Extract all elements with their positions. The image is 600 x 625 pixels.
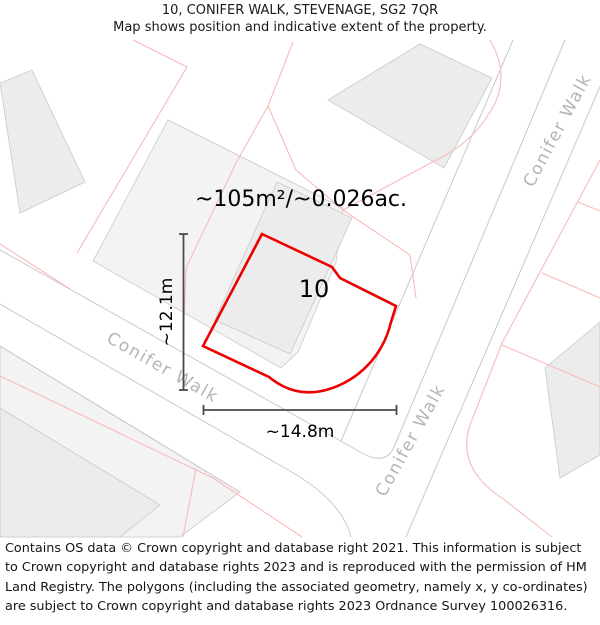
parcel-line-nw-lower (0, 244, 70, 289)
building-east (545, 322, 600, 478)
road-label-conifer-walk-northeast: Conifer Walk (520, 70, 596, 190)
map-header: 10, CONIFER WALK, STEVENAGE, SG2 7QR Map… (0, 3, 600, 36)
road-label-conifer-walk-southeast: Conifer Walk (372, 381, 450, 500)
parcel-spur-east-1 (578, 202, 600, 211)
area-label: ~105m²/~0.026ac. (195, 187, 407, 212)
height-dimension-label: ~12.1m (157, 278, 177, 347)
parcel-line-south-branch-2 (213, 478, 302, 537)
attribution-footer: Contains OS data © Crown copyright and d… (5, 539, 597, 617)
building-north (328, 44, 492, 168)
parcel-spur-east-2 (542, 273, 600, 298)
page: { "header": { "title": "10, CONIFER WALK… (0, 0, 600, 625)
page-title: 10, CONIFER WALK, STEVENAGE, SG2 7QR (0, 3, 600, 20)
building-top-left (0, 70, 85, 213)
property-map: Conifer Walk Conifer Walk Conifer Walk ~… (0, 38, 600, 538)
width-dimension-label: ~14.8m (266, 422, 335, 442)
page-subtitle: Map shows position and indicative extent… (0, 20, 600, 37)
plot-number-label: 10 (299, 275, 330, 303)
width-dimension-line (204, 405, 397, 415)
